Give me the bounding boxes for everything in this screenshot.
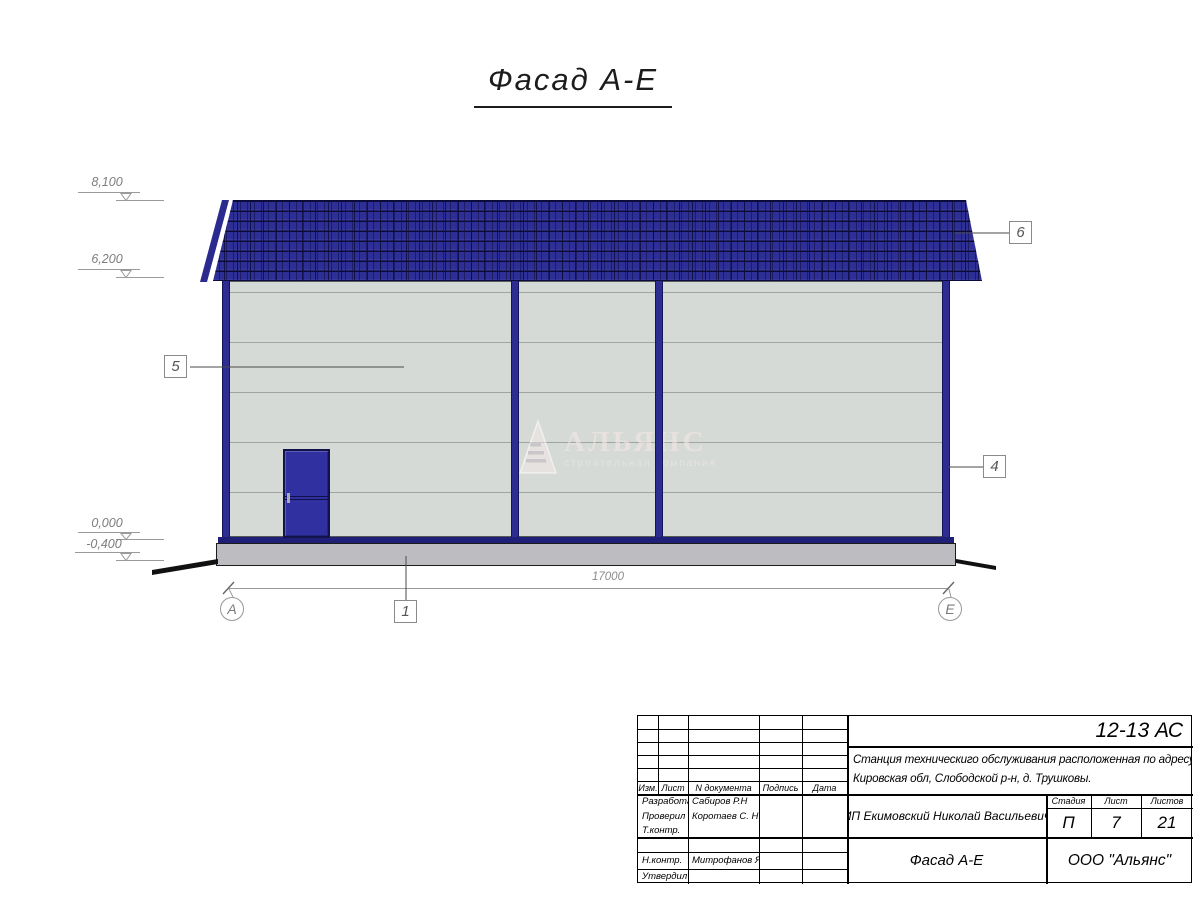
tb-stage-label: Стадия [1046, 794, 1091, 808]
tb-col-date: Дата [802, 781, 847, 794]
tb-client: ИП Екимовский Николай Васильевич [847, 794, 1046, 837]
drawing-title-text: Фасад А-Е [474, 62, 672, 108]
tb-name-empty [688, 837, 759, 852]
tb-description-line1: Станция техническиго обслуживания распол… [853, 751, 1191, 770]
tb-name-tcontrol [688, 824, 759, 837]
tb-name-ncontrol: Митрофанов Я. А [688, 852, 759, 869]
tb-description-line2: Кировская обл, Слободской р-н, д. Трушко… [853, 770, 1091, 789]
elevation-label-ground: -0,400 [73, 537, 135, 551]
tb-sheet-label: Лист [1091, 794, 1141, 808]
tb-col-izm: Изм. [638, 781, 658, 794]
tb-project-description: Станция техническиго обслуживания распол… [853, 747, 1191, 793]
foundation [216, 543, 956, 566]
tb-company: ООО "Альянс" [1046, 837, 1193, 884]
corner-pilaster-left [222, 281, 230, 537]
elevation-label-eaves: 6,200 [76, 252, 138, 266]
tb-role-empty [638, 837, 688, 852]
tb-role-approver: Утвердил [638, 869, 688, 884]
watermark-title: АЛЬЯНС [564, 426, 717, 459]
entrance-door [283, 449, 330, 538]
callout-foundation: 1 [394, 600, 417, 623]
watermark-pyramid-icon [518, 419, 558, 475]
door-handle [287, 493, 290, 503]
dimension-lines [228, 589, 951, 598]
elevation-label-ridge: 8,100 [76, 175, 138, 189]
dimension-ticks [223, 582, 954, 594]
watermark: АЛЬЯНС строительная компания [518, 414, 748, 480]
elevation-mark-lines [75, 193, 164, 561]
watermark-text: АЛЬЯНС строительная компания [564, 426, 717, 469]
tb-document-code: 12-13 АС [847, 716, 1193, 746]
title-block: Изм. Лист N документа Подпись Дата Разра… [637, 715, 1192, 883]
callout-roof: 6 [1009, 221, 1032, 244]
tb-sheet-value: 7 [1091, 808, 1141, 837]
tb-sheet-name: Фасад А-Е [847, 837, 1046, 884]
roof [198, 199, 990, 282]
callout-corner: 4 [983, 455, 1006, 478]
tb-name-developer: Сабиров Р.Н [688, 794, 759, 809]
axis-marker-a: А [220, 597, 244, 621]
elevation-label-floor: 0,000 [76, 516, 138, 530]
tb-role-tcontrol: Т.контр. [638, 824, 688, 837]
watermark-subtitle: строительная компания [564, 458, 717, 469]
tb-sheets-label: Листов [1141, 794, 1193, 808]
tb-col-list: Лист [658, 781, 688, 794]
dimension-value: 17000 [578, 571, 638, 583]
tb-role-ncontrol: Н.контр. [638, 852, 688, 869]
tb-col-docnum: N документа [688, 781, 759, 794]
axis-marker-e: Е [938, 597, 962, 621]
tb-stage-value: П [1046, 808, 1091, 837]
tb-role-checker: Проверил [638, 809, 688, 824]
facade-wall [222, 281, 950, 537]
door-rail [285, 496, 328, 500]
pilaster-middle-2 [655, 281, 663, 537]
tb-name-checker: Коротаев С. Н [688, 809, 759, 824]
tb-name-approver [688, 869, 759, 884]
pilaster-middle-1 [511, 281, 519, 537]
drawing-title: Фасад А-Е [423, 62, 723, 108]
drawing-sheet: Фасад А-Е АЛЬЯНС строительная компания [0, 0, 1200, 900]
tb-col-signature: Подпись [759, 781, 802, 794]
callout-wall-panel: 5 [164, 355, 187, 378]
corner-pilaster-right [942, 281, 950, 537]
tb-sheets-value: 21 [1141, 808, 1193, 837]
tb-role-developer: Разработал [638, 794, 688, 809]
